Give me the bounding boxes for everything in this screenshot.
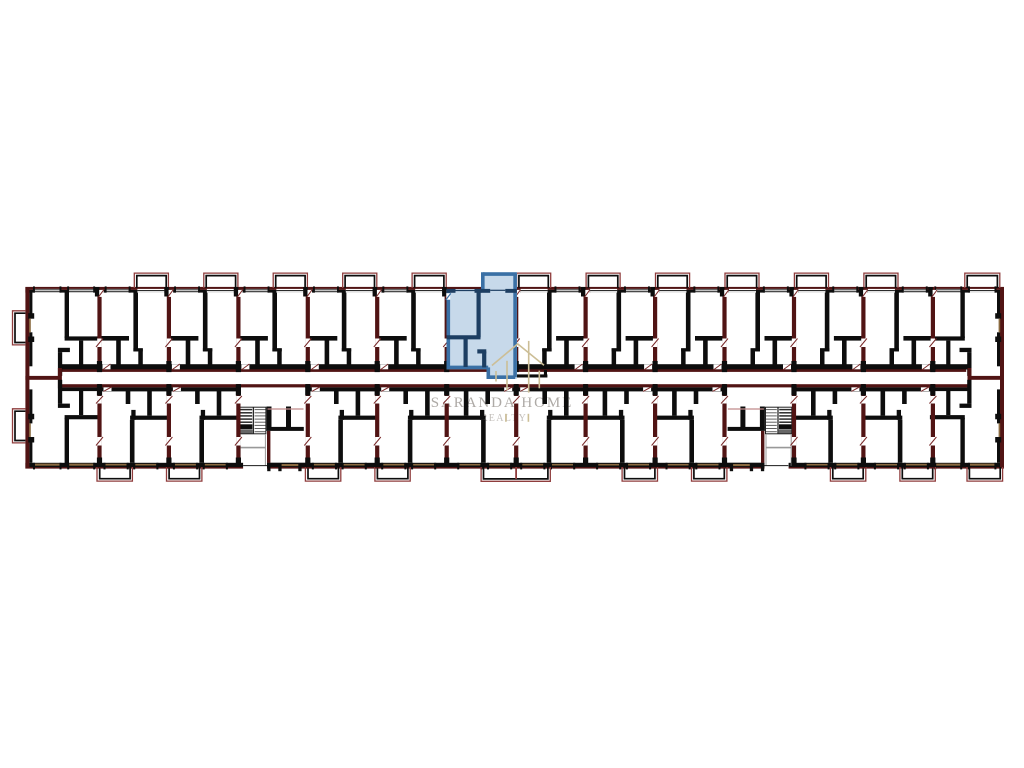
svg-text:SARANDA HOME: SARANDA HOME bbox=[431, 395, 573, 411]
svg-text:REALTY: REALTY bbox=[481, 413, 527, 424]
